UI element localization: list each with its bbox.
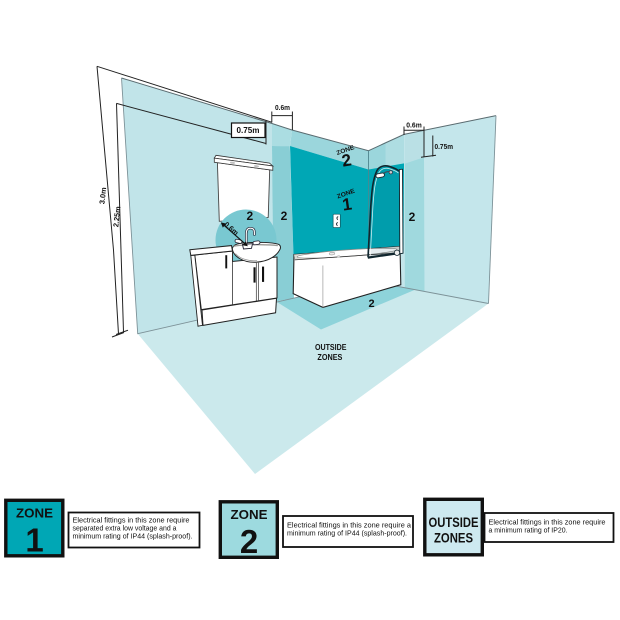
svg-text:Electrical fittings in this zo: Electrical fittings in this zone require (73, 517, 190, 525)
svg-text:2: 2 (246, 209, 253, 223)
svg-text:2: 2 (281, 209, 288, 223)
svg-text:0.6m: 0.6m (275, 103, 290, 112)
svg-text:0.75m: 0.75m (237, 126, 260, 135)
svg-text:2: 2 (368, 298, 374, 310)
svg-text:minimum rating of IP44 (splash: minimum rating of IP44 (splash-proof). (73, 533, 193, 541)
svg-text:OUTSIDE: OUTSIDE (315, 342, 347, 352)
svg-text:ZONE: ZONE (16, 506, 53, 521)
svg-text:Electrical fittings in this zo: Electrical fittings in this zone require… (287, 522, 411, 530)
svg-text:1: 1 (25, 522, 43, 559)
svg-text:ZONE: ZONE (231, 507, 268, 522)
svg-text:2: 2 (240, 523, 258, 560)
svg-text:OUTSIDE: OUTSIDE (429, 514, 479, 530)
svg-text:a minimum rating of IP20.: a minimum rating of IP20. (489, 527, 568, 535)
svg-text:ZONES: ZONES (317, 352, 342, 362)
svg-text:Electrical fittings in this zo: Electrical fittings in this zone require (489, 519, 606, 527)
svg-text:ZONES: ZONES (434, 530, 473, 546)
svg-text:0.6m: 0.6m (406, 123, 422, 130)
svg-text:minimum rating of IP44 (splash: minimum rating of IP44 (splash-proof). (287, 530, 407, 538)
svg-text:3.0m: 3.0m (97, 186, 108, 204)
svg-text:0.75m: 0.75m (435, 142, 454, 151)
svg-text:separated extra low voltage an: separated extra low voltage and a (73, 525, 177, 533)
svg-text:2: 2 (409, 210, 416, 224)
